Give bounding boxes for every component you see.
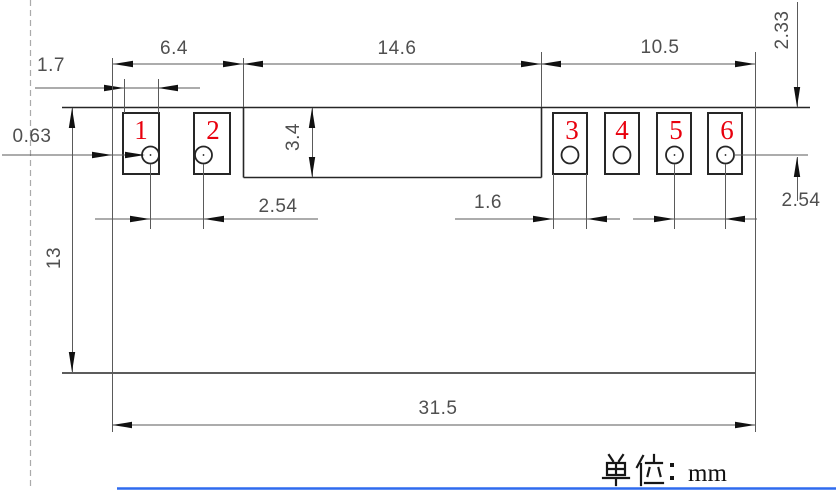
dim-hole-row-offset-value: 2.33	[772, 11, 793, 50]
colon-dot	[670, 476, 674, 480]
pad-1-number: 1	[134, 115, 148, 145]
dim-overall-width-value: 31.5	[419, 398, 458, 419]
pad-4-number: 4	[615, 115, 629, 145]
dim-left-group-width-value: 6.4	[160, 38, 188, 59]
unit-label: 单位：mm mm	[602, 455, 727, 487]
unit-label-mm: mm	[688, 460, 727, 487]
pad-5-hole-center-mark	[674, 154, 676, 156]
dim-body-height-value: 13	[44, 247, 65, 269]
dim-left-hole-pitch-value: 2.54	[259, 196, 298, 217]
dim-pad-height-value: 3.4	[283, 123, 304, 151]
dim-left-pad-width-value: 1.7	[37, 55, 65, 76]
pad-2-number: 2	[206, 115, 220, 145]
dim-center-width-value: 14.6	[378, 38, 417, 59]
dim-hole-diameter-value: 0.63	[13, 126, 52, 147]
colon-dot	[670, 463, 674, 467]
pad-1-hole-center-mark	[150, 154, 152, 156]
pad-6-number: 6	[720, 115, 734, 145]
pad-3-number: 3	[565, 115, 579, 145]
pad-5-number: 5	[669, 115, 683, 145]
dim-right-group-width-value: 10.5	[641, 37, 680, 58]
dim-right-pad-width-value: 1.6	[474, 192, 502, 213]
dim-right-hole-pitch-value: 2.54	[782, 190, 821, 211]
pad-6-hole-center-mark	[725, 154, 727, 156]
pcb-footprint-drawing: 1 2 3 4 5 6 6.4 14.6	[0, 0, 836, 490]
pad-2-hole-center-mark	[203, 154, 205, 156]
